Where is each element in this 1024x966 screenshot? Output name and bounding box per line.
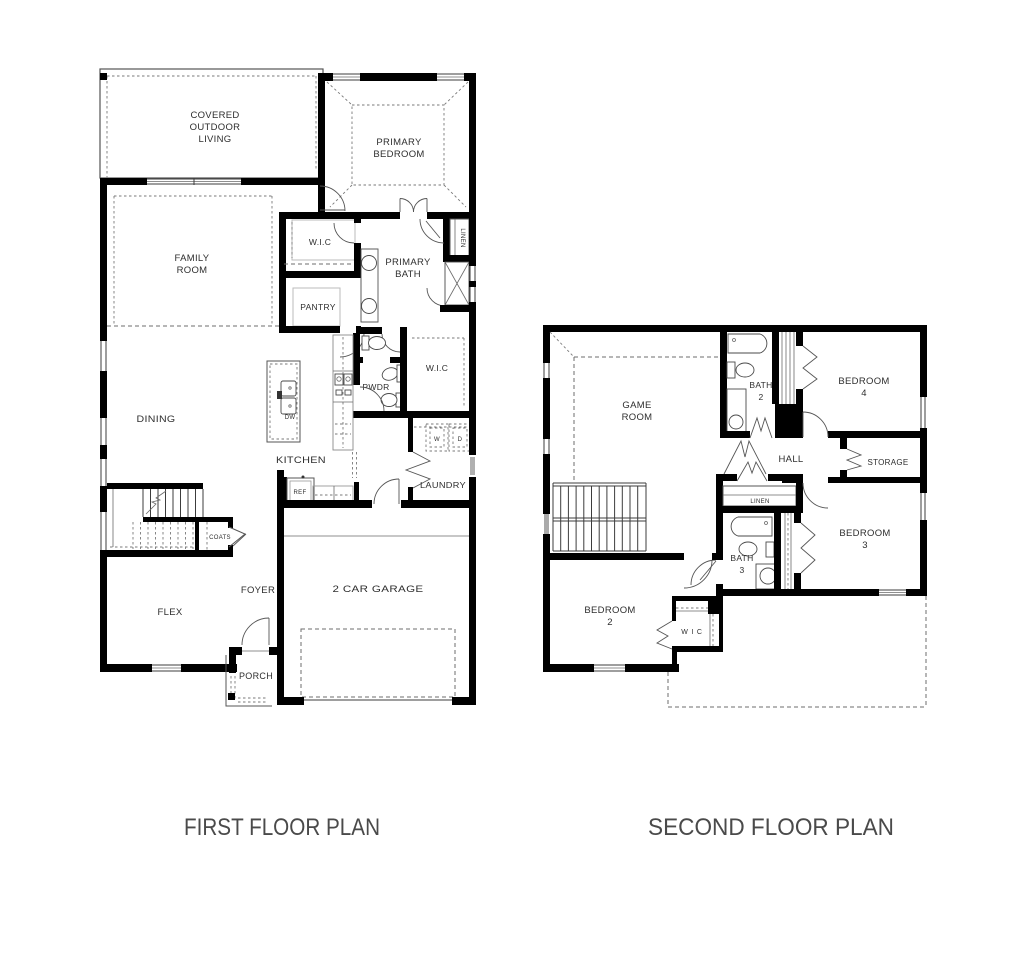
svg-text:FOYER: FOYER	[241, 585, 275, 596]
svg-text:FAMILY: FAMILY	[175, 253, 210, 264]
svg-text:PRIMARY: PRIMARY	[385, 257, 431, 268]
svg-text:LIVING: LIVING	[199, 134, 232, 145]
svg-text:W.I.C: W.I.C	[426, 363, 448, 373]
svg-text:COATS: COATS	[209, 535, 231, 541]
svg-text:BATH: BATH	[395, 269, 421, 280]
svg-text:PORCH: PORCH	[239, 671, 273, 681]
svg-text:2 CAR GARAGE: 2 CAR GARAGE	[333, 584, 424, 595]
svg-text:STORAGE: STORAGE	[867, 458, 908, 467]
svg-text:GAME: GAME	[622, 400, 651, 411]
svg-text:BEDROOM: BEDROOM	[373, 149, 424, 160]
svg-text:BEDROOM: BEDROOM	[838, 376, 889, 387]
svg-text:4: 4	[861, 388, 867, 399]
svg-text:SECOND FLOOR PLAN: SECOND FLOOR PLAN	[648, 814, 894, 841]
svg-text:FIRST FLOOR PLAN: FIRST FLOOR PLAN	[184, 814, 380, 841]
svg-text:KITCHEN: KITCHEN	[276, 455, 326, 466]
svg-text:PWDR: PWDR	[362, 382, 389, 392]
svg-text:3: 3	[739, 565, 744, 575]
svg-text:FLEX: FLEX	[158, 607, 183, 618]
svg-text:PANTRY: PANTRY	[300, 302, 336, 312]
svg-text:BATH: BATH	[730, 553, 753, 563]
svg-text:COVERED: COVERED	[190, 110, 239, 121]
svg-text:2: 2	[758, 392, 763, 402]
svg-text:OUTDOOR: OUTDOOR	[190, 122, 241, 133]
svg-text:HALL: HALL	[779, 454, 804, 465]
svg-text:W.I.C: W.I.C	[309, 237, 331, 247]
svg-text:D: D	[458, 437, 463, 443]
svg-text:LAUNDRY: LAUNDRY	[420, 480, 466, 490]
svg-text:DW: DW	[285, 415, 296, 421]
svg-text:2: 2	[607, 617, 613, 628]
svg-text:W I C: W I C	[681, 629, 703, 636]
svg-text:ROOM: ROOM	[177, 265, 208, 276]
svg-text:LINEN: LINEN	[750, 499, 769, 505]
svg-text:PRIMARY: PRIMARY	[376, 137, 422, 148]
svg-text:BEDROOM: BEDROOM	[584, 605, 635, 616]
svg-text:W: W	[434, 437, 440, 443]
svg-text:DINING: DINING	[137, 414, 176, 425]
svg-text:ROOM: ROOM	[622, 412, 653, 423]
svg-text:REF: REF	[294, 490, 307, 496]
svg-text:3: 3	[862, 540, 868, 551]
svg-text:LINEN: LINEN	[459, 228, 465, 247]
svg-text:BATH: BATH	[749, 380, 772, 390]
svg-text:BEDROOM: BEDROOM	[839, 528, 890, 539]
